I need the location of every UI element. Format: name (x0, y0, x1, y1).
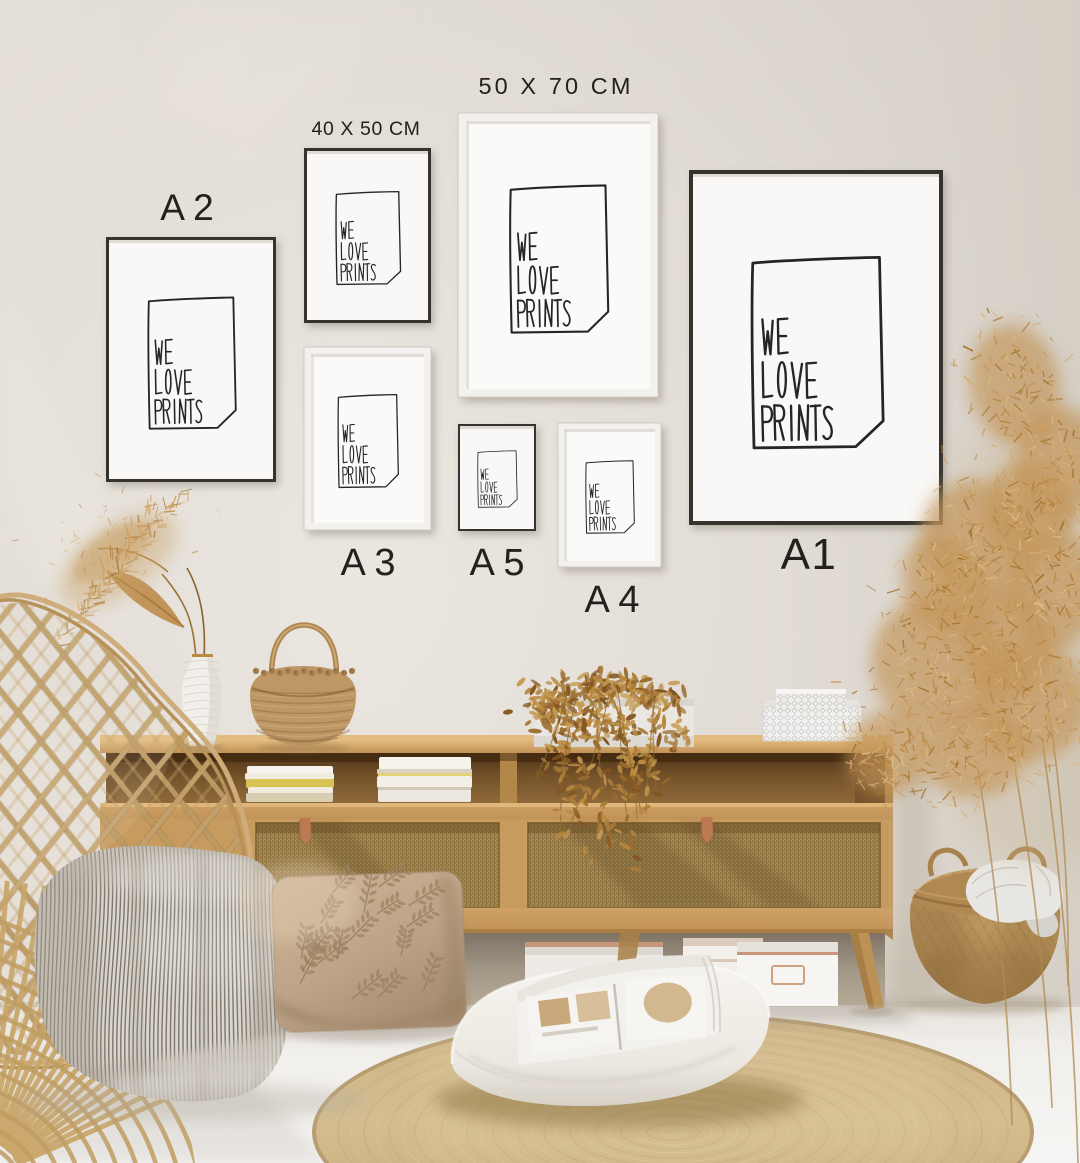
svg-text:A 5: A 5 (470, 542, 525, 584)
svg-text:A 3: A 3 (341, 542, 396, 584)
svg-text:A 4: A 4 (585, 579, 640, 621)
svg-text:40 X 50 CM: 40 X 50 CM (312, 118, 421, 140)
svg-text:A1: A1 (781, 530, 838, 579)
svg-text:A 2: A 2 (160, 187, 214, 228)
svg-text:50 X 70 CM: 50 X 70 CM (478, 73, 633, 99)
